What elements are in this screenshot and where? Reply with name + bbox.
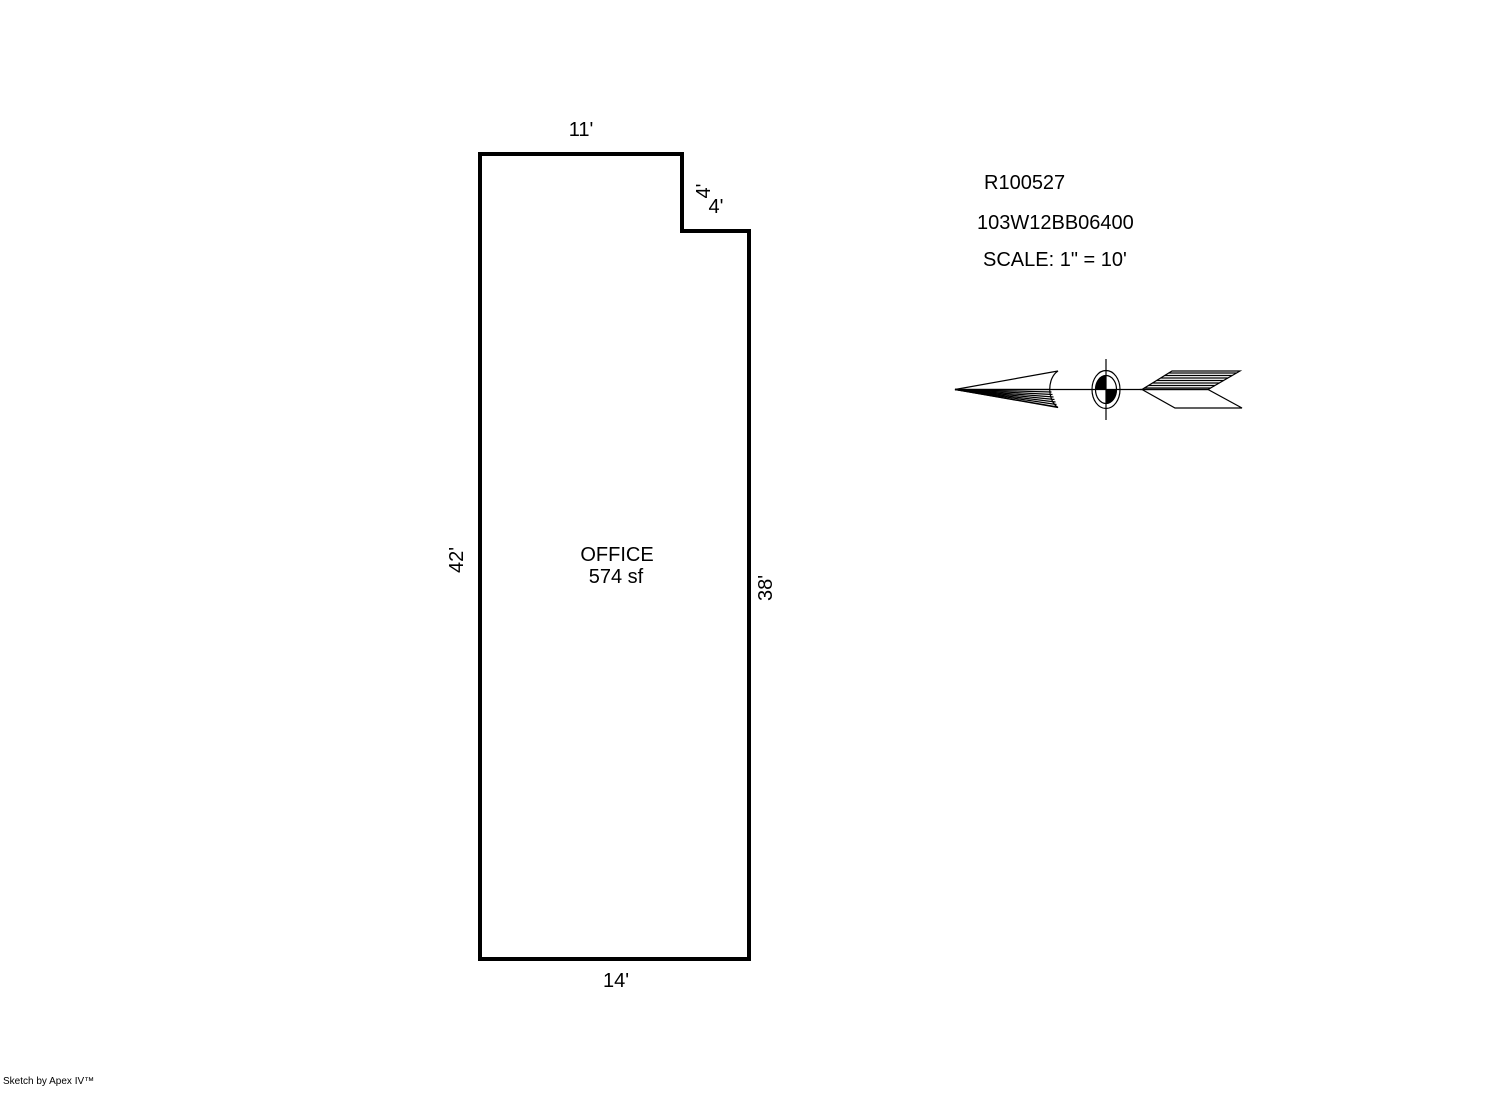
dimension-top: 11' — [569, 119, 594, 141]
sketch-page: 11' 4' 4' 42' 38' 14' OFFICE 574 sf R100… — [0, 0, 1492, 1094]
dimension-left: 42' — [446, 547, 468, 573]
dimension-bottom: 14' — [603, 970, 629, 992]
north-arrow-icon — [955, 359, 1242, 420]
apex-credit: Sketch by Apex IV™ — [3, 1076, 94, 1088]
sketch-linework — [0, 0, 1492, 1094]
dimension-notch-horizontal: 4' — [709, 196, 724, 218]
record-id: R100527 — [984, 172, 1065, 194]
room-name: OFFICE — [580, 544, 653, 566]
parcel-id: 103W12BB06400 — [977, 212, 1134, 234]
scale-note: SCALE: 1" = 10' — [983, 249, 1127, 271]
dimension-right: 38' — [755, 575, 777, 601]
room-area: 574 sf — [589, 566, 643, 588]
